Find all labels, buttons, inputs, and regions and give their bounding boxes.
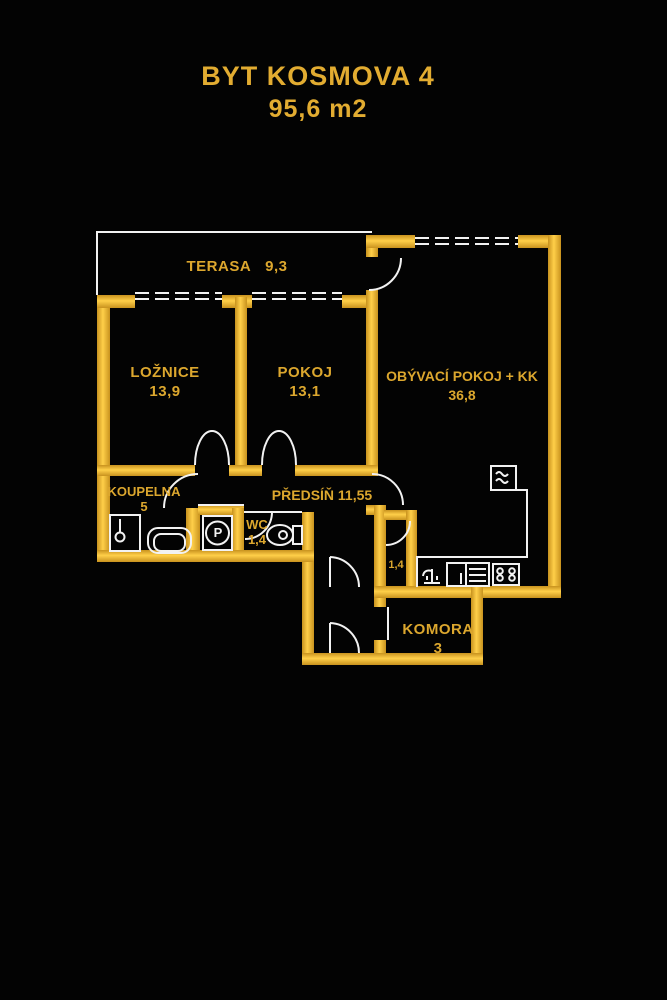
plan-title: BYT KOSMOVA 4 95,6 m2 (128, 60, 508, 125)
room-label-terasa: TERASA9,3 (127, 257, 347, 276)
plan-title-line1: BYT KOSMOVA 4 (201, 61, 435, 91)
room-label-komora: KOMORA 3 (395, 620, 481, 658)
wall (366, 235, 415, 248)
room-label-obyvaci: OBÝVACÍ POKOJ + KK 36,8 (377, 367, 547, 405)
wall (302, 512, 314, 663)
washing-machine-letter: P (210, 525, 226, 541)
room-label-loznice: LOŽNICE 13,9 (95, 363, 235, 401)
room-label-koupelna: KOUPELNA 5 (99, 484, 189, 514)
wall (374, 586, 561, 598)
wall (97, 295, 135, 308)
plan-area-total: 95,6 m2 (269, 95, 368, 123)
room-label-satna: 1,4 (381, 556, 411, 575)
wall (229, 465, 262, 476)
wall (548, 235, 561, 598)
shower-icon (110, 515, 140, 551)
boiler-icon (491, 466, 516, 490)
kitchen-counter-line (417, 490, 527, 587)
stove-icon (493, 564, 519, 585)
wall (97, 550, 314, 562)
wall (97, 465, 195, 476)
kitchen-cabinet-icon (447, 563, 489, 586)
room-label-wc: WC 1,4 (241, 517, 273, 547)
floor-plan: BYT KOSMOVA 4 95,6 m2 TERASA9,3 LOŽNICE … (0, 0, 667, 1000)
wall (295, 465, 378, 476)
room-label-predsin: PŘEDSÍŇ 11,55 (242, 486, 402, 505)
wall (97, 295, 110, 562)
kitchen-sink-icon (423, 569, 440, 583)
room-label-pokoj: POKOJ 13,1 (245, 363, 365, 401)
